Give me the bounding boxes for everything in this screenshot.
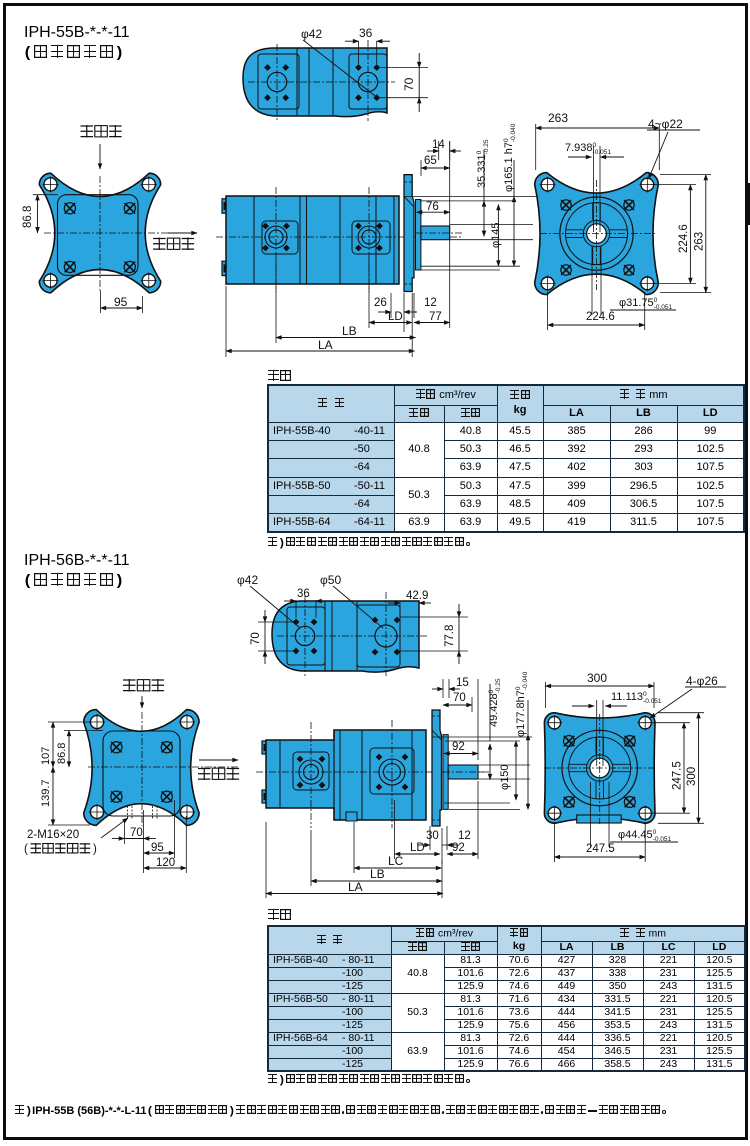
svg-text:263: 263 bbox=[548, 111, 568, 125]
svg-text:φ145: φ145 bbox=[490, 223, 502, 249]
svg-text:86.8: 86.8 bbox=[56, 743, 68, 764]
svg-text:LB: LB bbox=[342, 324, 357, 338]
svg-text:φ42: φ42 bbox=[301, 27, 322, 41]
svg-text:φ44.450-0.051: φ44.450-0.051 bbox=[618, 829, 672, 843]
svg-text:(: ( bbox=[24, 844, 28, 856]
svg-text:φ177.8h70-0.040: φ177.8h70-0.040 bbox=[515, 671, 529, 737]
svg-text:): ) bbox=[93, 844, 97, 856]
svg-text:70: 70 bbox=[453, 692, 466, 704]
svg-text:120: 120 bbox=[156, 857, 175, 869]
svg-text:247.5: 247.5 bbox=[672, 761, 684, 790]
svg-text:4~φ22: 4~φ22 bbox=[648, 117, 683, 131]
svg-text:42.9: 42.9 bbox=[406, 590, 428, 602]
svg-text:LA: LA bbox=[348, 880, 363, 894]
svg-text:92: 92 bbox=[452, 741, 465, 753]
svg-text:2-M16×20: 2-M16×20 bbox=[27, 829, 79, 841]
svg-text:φ165.1 h70-0.040: φ165.1 h70-0.040 bbox=[503, 123, 517, 192]
svg-text:263: 263 bbox=[694, 232, 706, 251]
svg-text:4-φ26: 4-φ26 bbox=[686, 674, 718, 688]
svg-text:LC: LC bbox=[388, 854, 404, 868]
svg-text:35.3310-0.25: 35.3310-0.25 bbox=[476, 139, 490, 188]
svg-text:φ150: φ150 bbox=[499, 765, 511, 791]
svg-text:76: 76 bbox=[426, 201, 439, 213]
svg-text:26: 26 bbox=[374, 297, 387, 309]
svg-text:30: 30 bbox=[426, 830, 439, 842]
svg-text:LD: LD bbox=[388, 311, 403, 323]
svg-text:95: 95 bbox=[151, 842, 164, 854]
svg-text:139.7: 139.7 bbox=[40, 779, 52, 807]
svg-text:15: 15 bbox=[456, 677, 469, 689]
svg-text:36: 36 bbox=[297, 588, 310, 600]
svg-text:LD: LD bbox=[410, 842, 425, 854]
svg-text:12: 12 bbox=[458, 830, 471, 842]
svg-text:LA: LA bbox=[318, 338, 333, 352]
svg-text:70: 70 bbox=[402, 77, 416, 91]
svg-text:φ50: φ50 bbox=[320, 573, 341, 587]
svg-text:LB: LB bbox=[370, 867, 385, 881]
svg-text:107: 107 bbox=[40, 747, 52, 765]
svg-text:86.8: 86.8 bbox=[22, 206, 34, 228]
svg-text:247.5: 247.5 bbox=[586, 843, 615, 855]
svg-text:300: 300 bbox=[587, 671, 607, 685]
svg-text:92: 92 bbox=[452, 842, 465, 854]
svg-text:65: 65 bbox=[424, 155, 437, 167]
svg-text:77: 77 bbox=[429, 311, 442, 323]
svg-text:224.6: 224.6 bbox=[586, 311, 615, 323]
svg-text:300: 300 bbox=[686, 767, 698, 786]
svg-text:φ31.750-0.051: φ31.750-0.051 bbox=[619, 297, 673, 311]
svg-text:φ42: φ42 bbox=[237, 573, 258, 587]
svg-text:95: 95 bbox=[114, 295, 128, 309]
svg-text:224.6: 224.6 bbox=[678, 224, 690, 253]
svg-text:70: 70 bbox=[130, 827, 143, 839]
svg-text:77.8: 77.8 bbox=[444, 625, 456, 647]
svg-text:7.9380-0.051: 7.9380-0.051 bbox=[565, 142, 611, 156]
svg-text:12: 12 bbox=[424, 297, 437, 309]
svg-text:70: 70 bbox=[250, 632, 262, 645]
svg-text:36: 36 bbox=[359, 26, 373, 40]
